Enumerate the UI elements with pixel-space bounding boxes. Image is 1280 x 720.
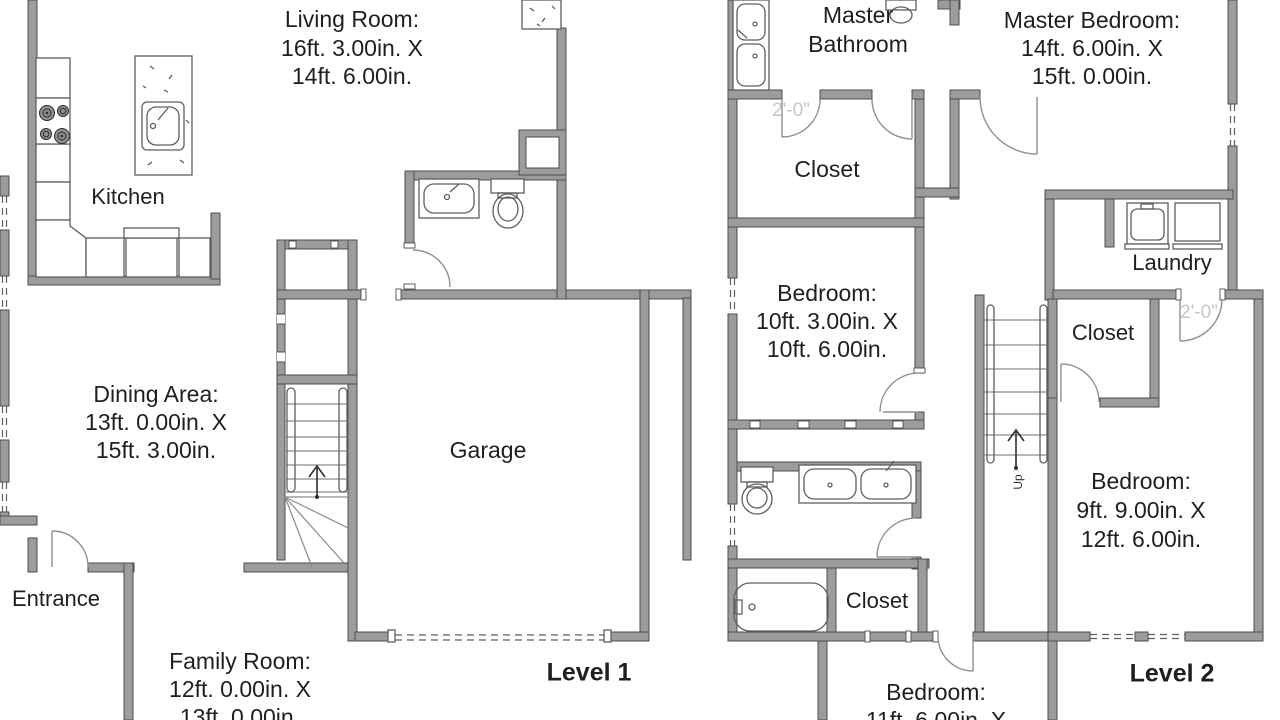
window-bathroom <box>728 504 737 546</box>
laundry-label: Laundry <box>1132 250 1212 275</box>
master-bedroom-door <box>980 97 1037 154</box>
window-bedroom-bottom-2 <box>1148 632 1185 641</box>
level-1-stairs <box>285 388 348 567</box>
master-bathroom-label-line2: Bathroom <box>808 31 908 57</box>
entrance-door <box>52 531 88 567</box>
washer <box>1125 203 1169 249</box>
level-2-caption: Level 2 <box>1130 660 1215 688</box>
powder-toilet <box>491 179 524 228</box>
master-bedroom-dim-1: 14ft. 6.00in. X <box>1021 35 1163 61</box>
window-bedroom-bottom-1 <box>1090 632 1135 641</box>
living-room-counter <box>522 0 561 29</box>
master-bedroom-dim-2: 15ft. 0.00in. <box>1032 63 1152 89</box>
window-dining-1 <box>0 196 9 230</box>
window-bedroom-middle <box>728 278 737 314</box>
bathtub <box>734 583 828 631</box>
master-double-vanity <box>733 0 769 90</box>
window-master-bedroom <box>1228 104 1237 146</box>
bedroom-bottom-door <box>933 631 973 671</box>
living-room-dim-2: 14ft. 6.00in. <box>292 63 412 89</box>
dryer <box>1173 203 1222 249</box>
hall-door-width-label: 2'-0" <box>1180 302 1218 323</box>
stairs-up-label: Up <box>1011 474 1025 490</box>
bedroom-bottom-dim-1: 11ft. 6.00in. X <box>866 707 1006 720</box>
bedroom-middle-dim-2: 10ft. 6.00in. <box>767 336 887 362</box>
powder-room-door <box>404 243 450 289</box>
bathroom-door <box>877 518 916 557</box>
walk-in-closet-door-right <box>872 99 912 139</box>
dining-area-dim-1: 13ft. 0.00in. X <box>85 409 227 435</box>
master-bathroom-label-line1: Master <box>823 2 894 28</box>
kitchen-label: Kitchen <box>91 184 164 209</box>
garage-door <box>388 630 611 642</box>
floor-plan-canvas: Living Room: 16ft. 3.00in. X 14ft. 6.00i… <box>0 0 1280 720</box>
level-1-labels: Living Room: 16ft. 3.00in. X 14ft. 6.00i… <box>12 6 632 720</box>
level-2-stairs: Up <box>984 305 1048 490</box>
dining-area-label: Dining Area: <box>93 381 218 407</box>
bedroom-right-dim-2: 12ft. 6.00in. <box>1081 526 1201 552</box>
bathroom-double-vanity <box>799 461 916 503</box>
family-room-label: Family Room: <box>169 648 311 674</box>
window-dining-3 <box>0 406 9 440</box>
level-1-plan: Living Room: 16ft. 3.00in. X 14ft. 6.00i… <box>0 0 691 720</box>
level-1-walls <box>0 0 691 720</box>
closet-bottom-label: Closet <box>846 588 908 613</box>
bedroom-middle-label: Bedroom: <box>777 280 877 306</box>
bedroom-right-label: Bedroom: <box>1091 468 1191 494</box>
entrance-label: Entrance <box>12 586 100 611</box>
bedroom-bottom-label: Bedroom: <box>886 679 986 705</box>
bedroom-right-dim-1: 9ft. 9.00in. X <box>1076 497 1205 523</box>
master-bedroom-label: Master Bedroom: <box>1004 7 1180 33</box>
closet-door-width-label: 2'-0" <box>772 100 810 121</box>
window-entrance <box>0 482 9 512</box>
window-dining-2 <box>0 276 9 310</box>
level-2-plan: Up <box>728 0 1263 720</box>
bedroom-middle-dim-1: 10ft. 3.00in. X <box>756 308 898 334</box>
family-room-dim-1: 12ft. 0.00in. X <box>169 676 311 702</box>
dining-area-dim-2: 15ft. 3.00in. <box>96 437 216 463</box>
powder-room-fixtures <box>419 179 524 228</box>
stairs-up-arrow <box>309 466 325 499</box>
kitchen-island <box>135 56 192 175</box>
bedroom-middle-door <box>880 368 925 412</box>
bathroom-toilet <box>741 467 773 514</box>
laundry-fixtures <box>1125 203 1222 249</box>
stove <box>36 98 70 144</box>
family-room-dim-2: 13ft. 0.00in. <box>180 704 300 720</box>
living-room-dim-1: 16ft. 3.00in. X <box>281 35 423 61</box>
walk-in-closet-label: Closet <box>794 156 860 182</box>
level-1-caption: Level 1 <box>547 659 632 687</box>
garage-label: Garage <box>450 437 527 463</box>
closet-middle-door <box>1061 364 1099 402</box>
closet-middle-label: Closet <box>1072 320 1134 345</box>
powder-sink <box>419 179 479 218</box>
stairs-up-arrow-level-2 <box>1008 430 1024 470</box>
living-room-label: Living Room: <box>285 6 419 32</box>
